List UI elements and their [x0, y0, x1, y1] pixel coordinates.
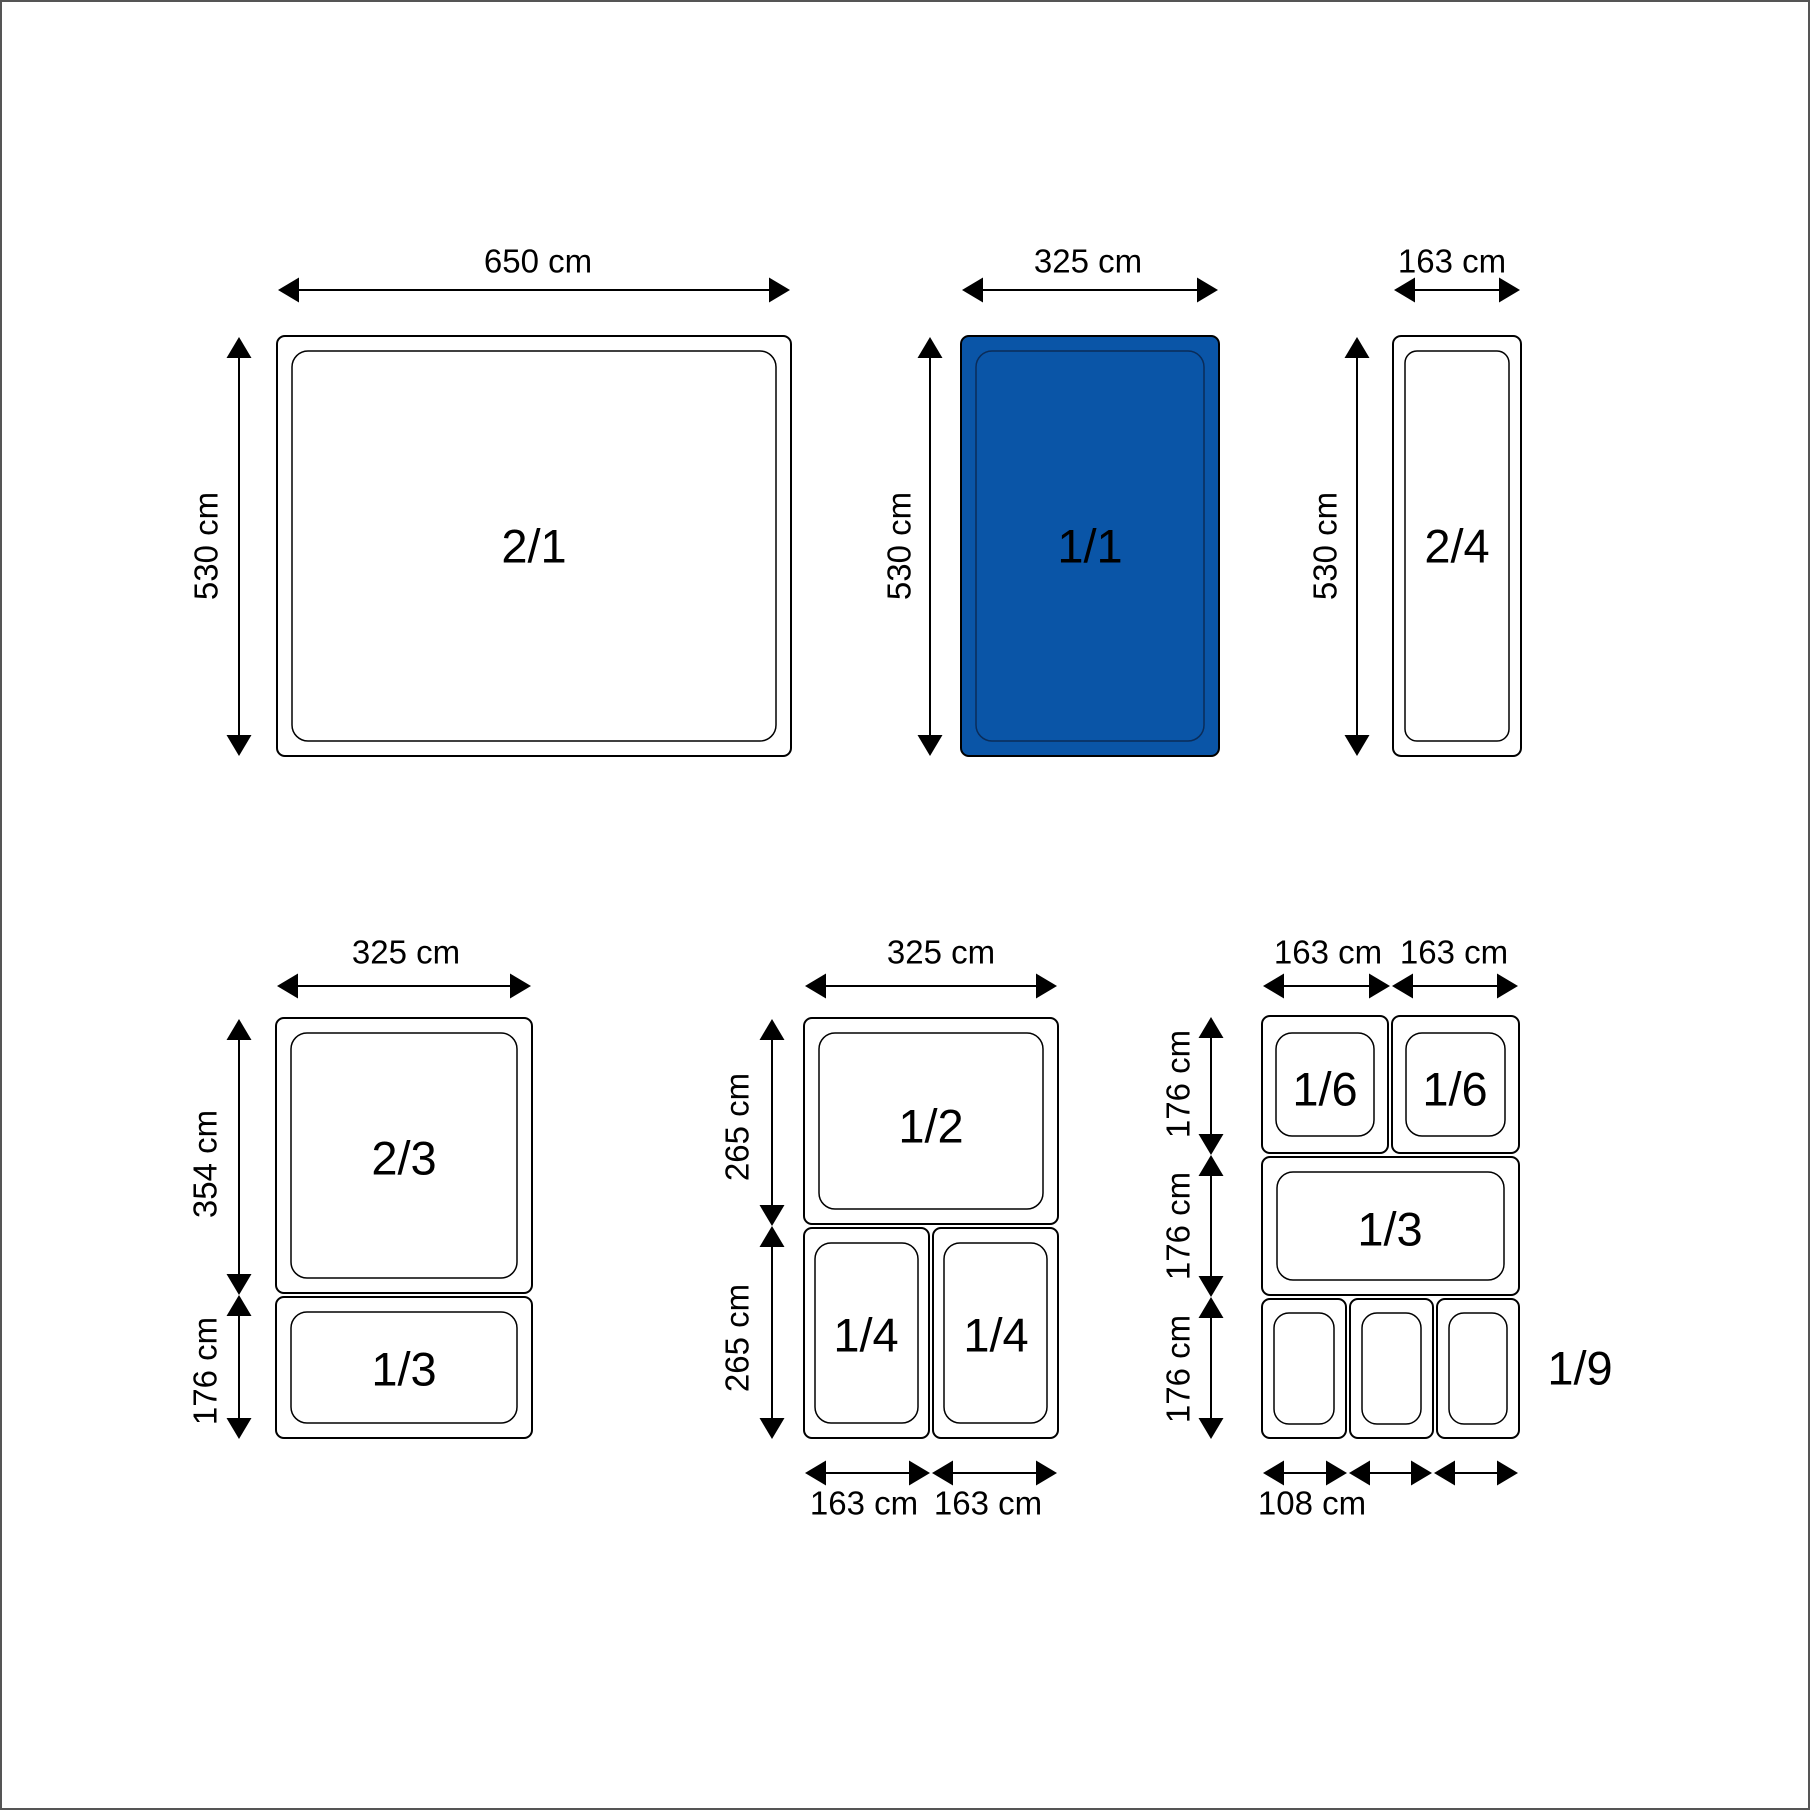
svg-text:530 cm: 530 cm [1307, 492, 1344, 600]
svg-text:1/4: 1/4 [963, 1309, 1028, 1362]
svg-text:354 cm: 354 cm [187, 1110, 224, 1218]
svg-text:2/4: 2/4 [1424, 520, 1489, 573]
svg-text:1/3: 1/3 [1357, 1203, 1422, 1256]
svg-text:325 cm: 325 cm [1034, 243, 1142, 280]
svg-text:163 cm: 163 cm [1398, 243, 1506, 280]
svg-text:530 cm: 530 cm [188, 492, 225, 600]
svg-text:176 cm: 176 cm [1160, 1172, 1197, 1280]
svg-text:2/1: 2/1 [501, 520, 566, 573]
svg-text:325 cm: 325 cm [887, 934, 995, 971]
svg-text:1/3: 1/3 [371, 1343, 436, 1396]
svg-text:163 cm: 163 cm [1274, 934, 1382, 971]
svg-text:1/2: 1/2 [898, 1100, 963, 1153]
svg-text:1/6: 1/6 [1422, 1063, 1487, 1116]
svg-text:325 cm: 325 cm [352, 934, 460, 971]
svg-text:2/3: 2/3 [371, 1132, 436, 1185]
svg-text:1/1: 1/1 [1057, 520, 1122, 573]
svg-text:1/6: 1/6 [1292, 1063, 1357, 1116]
svg-text:265 cm: 265 cm [719, 1073, 756, 1181]
svg-text:176 cm: 176 cm [1160, 1030, 1197, 1138]
svg-text:163 cm: 163 cm [810, 1485, 918, 1522]
svg-text:1/9: 1/9 [1547, 1342, 1612, 1395]
svg-text:176 cm: 176 cm [187, 1317, 224, 1425]
svg-text:650 cm: 650 cm [484, 243, 592, 280]
svg-text:176 cm: 176 cm [1160, 1315, 1197, 1423]
svg-text:108 cm: 108 cm [1258, 1485, 1366, 1522]
svg-text:265 cm: 265 cm [719, 1284, 756, 1392]
svg-text:163 cm: 163 cm [1400, 934, 1508, 971]
svg-text:1/4: 1/4 [833, 1309, 898, 1362]
svg-text:530 cm: 530 cm [881, 492, 918, 600]
svg-text:163 cm: 163 cm [934, 1485, 1042, 1522]
